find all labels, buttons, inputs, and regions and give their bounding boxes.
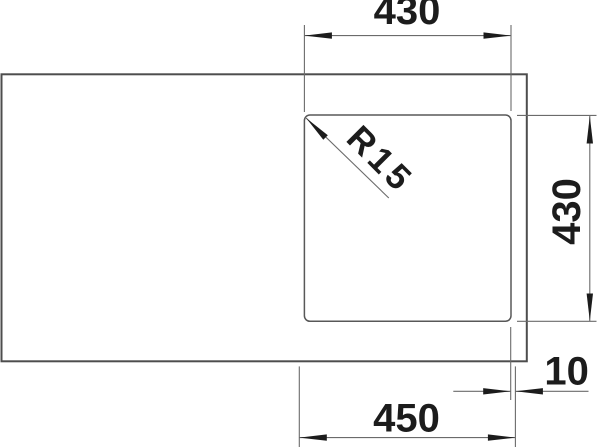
svg-text:430: 430 <box>545 178 589 245</box>
svg-text:10: 10 <box>544 350 589 394</box>
svg-text:450: 450 <box>373 396 440 440</box>
svg-text:430: 430 <box>374 0 441 33</box>
